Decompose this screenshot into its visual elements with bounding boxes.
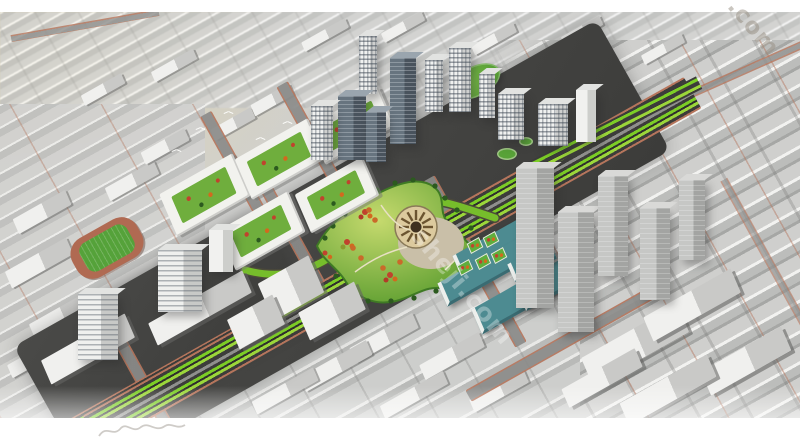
masterplan-aerial-rendering: sheji.com .com: [0, 0, 800, 444]
signature-squiggle: [95, 420, 190, 442]
office-slab: [538, 104, 568, 146]
tower-gray: [679, 180, 705, 260]
tower-white: [209, 230, 233, 272]
tower-dark-glass: [366, 112, 386, 162]
top-margin: [0, 0, 800, 12]
bird-icon: [172, 148, 181, 153]
tower-gray: [516, 168, 554, 308]
office-slab: [498, 94, 524, 140]
tower-white: [158, 250, 202, 312]
tower-white: [425, 60, 443, 112]
office-slab: [576, 90, 596, 142]
tower-dark-glass: [338, 96, 366, 160]
tower-white: [78, 294, 118, 360]
tower-dark-glass: [390, 58, 416, 144]
bird-icon: [283, 120, 292, 125]
tower-gray: [558, 212, 594, 332]
bird-icon: [224, 110, 233, 115]
tower-white: [359, 36, 377, 94]
bird-icon: [196, 126, 205, 131]
tower-white: [479, 74, 495, 118]
bottom-margin: [0, 418, 800, 444]
tower-gray: [640, 208, 670, 300]
bird-icon: [256, 136, 265, 141]
tower-gray: [598, 176, 628, 276]
tower-white: [311, 106, 333, 160]
tower-white: [449, 48, 471, 112]
